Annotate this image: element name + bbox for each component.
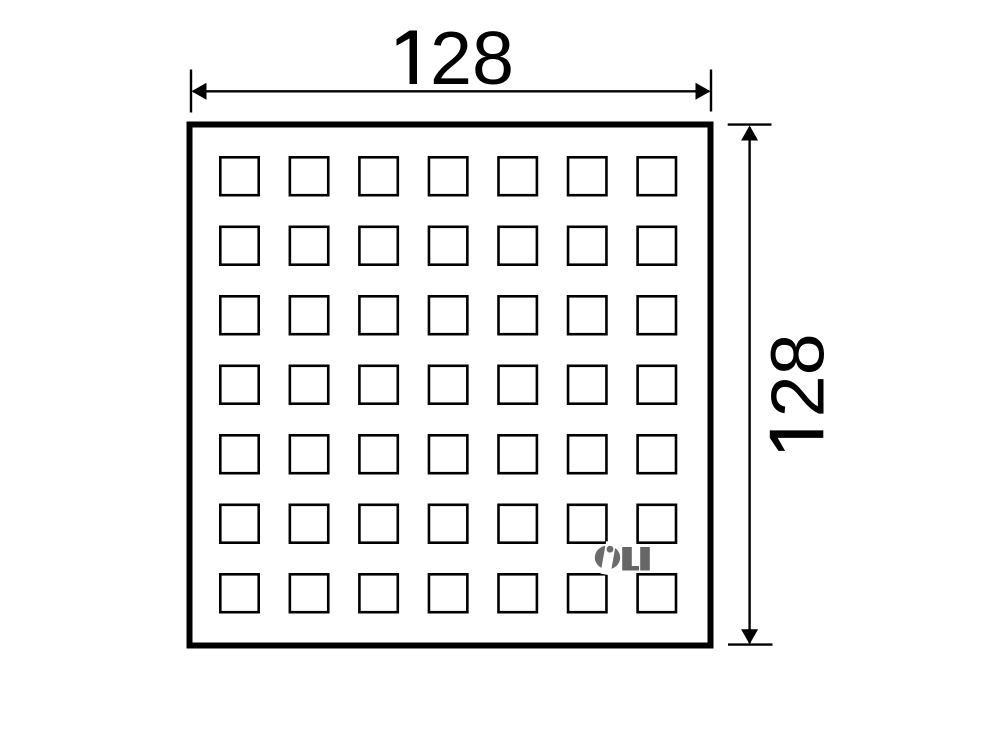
svg-text:28: 28 bbox=[755, 333, 839, 417]
svg-text:28: 28 bbox=[430, 16, 514, 100]
